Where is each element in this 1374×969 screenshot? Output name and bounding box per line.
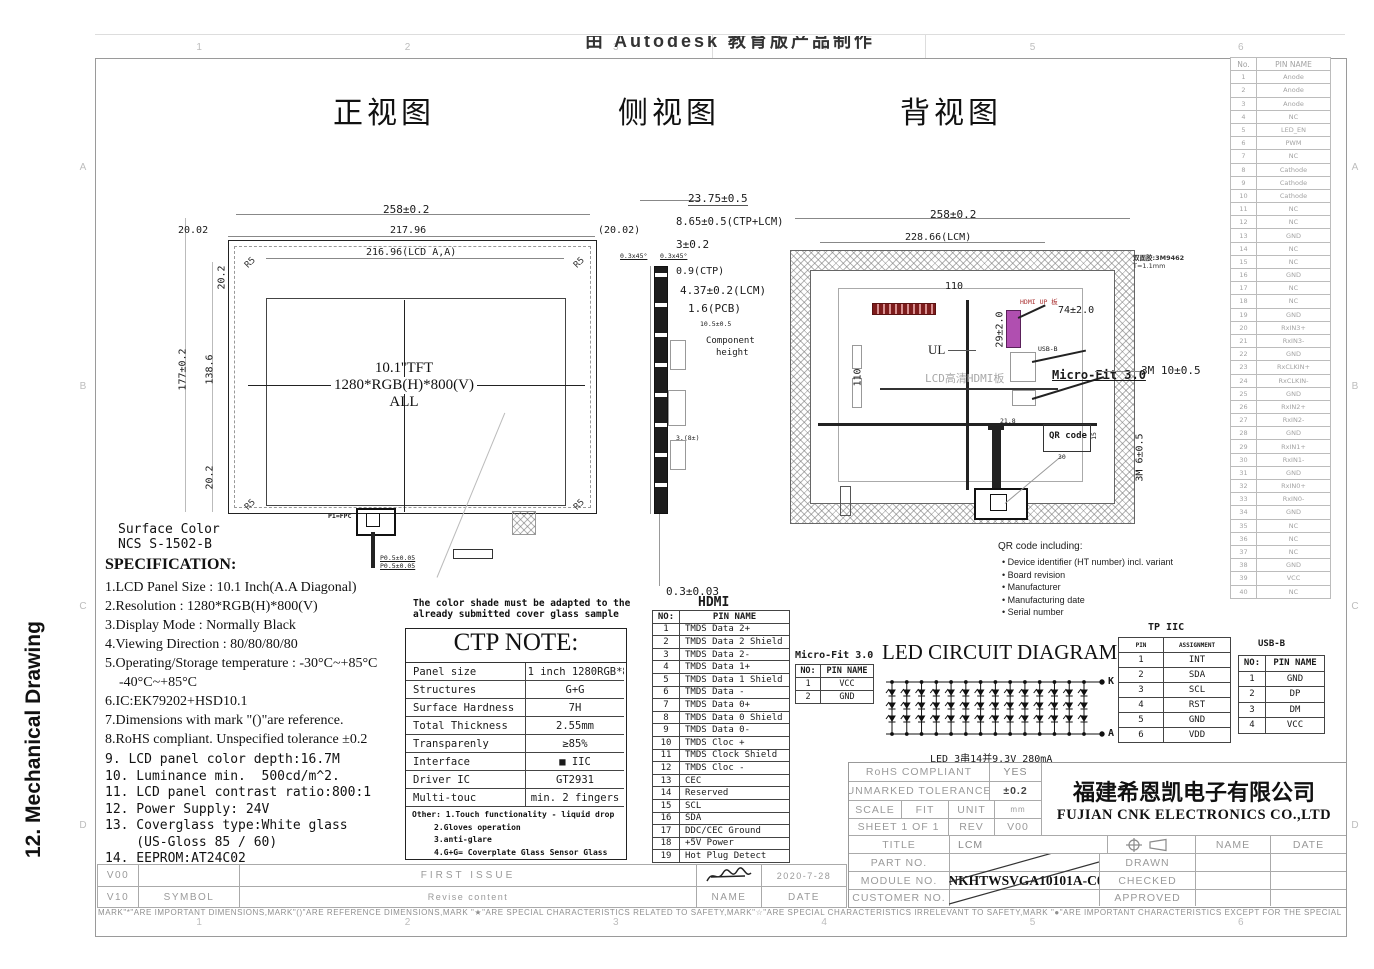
table-cell: A (1352, 162, 1359, 173)
table-row: Panel size10.1 inch 1280RGB*800 (406, 663, 624, 681)
table-row: Other: 1.Touch functionality - liquid dr… (412, 809, 626, 822)
antenna-part (840, 486, 851, 516)
table-row: Surface Hardness7H (406, 699, 624, 717)
table-cell: SCL (1164, 683, 1231, 698)
table-cell: D (1351, 820, 1358, 831)
fpc-connector-inner (366, 513, 380, 527)
table-cell: 10.1 inch 1280RGB*800 (526, 663, 624, 681)
table-cell: NC (1257, 282, 1331, 295)
led-circuit-diagram (884, 668, 1110, 748)
table-row: 11. LCD panel contrast ratio:800:1 (105, 785, 415, 802)
table-row: 25GND (1231, 388, 1331, 401)
table-cell: 32 (1231, 480, 1257, 493)
table-cell: 18 (653, 838, 680, 851)
title-block: RoHS COMPLIANT YES UNMARKED TOLERANCE ±0… (848, 762, 1347, 908)
side-component (668, 390, 686, 426)
table-cell: +5V Power (680, 838, 790, 851)
table-row: NO:PIN NAME (1239, 656, 1325, 672)
table-cell: 14 (653, 787, 680, 800)
table-row: 3.anti-glare (412, 834, 626, 847)
table-row: 12NC (1231, 216, 1331, 229)
table-cell: 3 (613, 915, 619, 929)
table-cell: 4.Viewing Direction : 80/80/80/80 (105, 635, 415, 654)
surface-color-note: Surface Color NCS S-1502-B (118, 522, 220, 552)
grid-cols-bottom: 123456 (95, 915, 1345, 929)
panel-resolution-text: 1280*RGB(H)*800(V) (331, 377, 477, 394)
unit-label: UNIT (949, 801, 995, 819)
table-cell: Device identifier (HT number) incl. vari… (1002, 556, 1232, 569)
qr-note-items: Device identifier (HT number) incl. vari… (1002, 556, 1232, 619)
ul-mark: UL (928, 342, 945, 358)
table-cell: NC (1257, 520, 1331, 533)
table-row: 8Cathode (1231, 164, 1331, 177)
revision-date-header: DATE (762, 887, 846, 907)
dim-label: 1.6(PCB) (688, 302, 741, 315)
table-cell: 14 (1231, 243, 1257, 256)
table-row: 17NC (1231, 282, 1331, 295)
table-cell: 39 (1231, 572, 1257, 585)
table-row: A (1348, 58, 1362, 277)
table-cell: 6 (1238, 915, 1244, 929)
table-row: 6VDD (1119, 728, 1231, 743)
table-cell: Structures (406, 681, 526, 699)
table-cell: 40 (1231, 586, 1257, 599)
table-cell: 5 (1231, 124, 1257, 137)
drawing-sheet: 12. Mechanical Drawing 123456 123456 ABC… (0, 0, 1374, 969)
table-cell: PIN (1119, 638, 1164, 653)
table-cell: 5 (653, 674, 680, 687)
name-column-label: NAME (1196, 836, 1271, 854)
table-row: -40°C~+85°C (105, 673, 415, 692)
table-row: Manufacturer (1002, 581, 1232, 594)
table-row: 2Anode (1231, 84, 1331, 97)
table-cell: RxIN0+ (1257, 480, 1331, 493)
table-cell: SDA (680, 813, 790, 826)
table-cell: 6 (1119, 728, 1164, 743)
checked-date (1271, 872, 1346, 890)
table-cell: RxIN1+ (1257, 440, 1331, 453)
led-diagram-title: LED CIRCUIT DIAGRAM: (882, 640, 1123, 665)
table-cell: 3 (1231, 98, 1257, 111)
table-cell: Anode (1257, 71, 1331, 84)
table-cell: GND (1164, 713, 1231, 728)
table-row: No.PIN NAME (1231, 58, 1331, 71)
table-row: 3SCL (1119, 683, 1231, 698)
table-cell: VCC (821, 678, 874, 691)
dim-label: 21.8 (1000, 417, 1016, 425)
dim-label: 10.5±0.5 (700, 320, 731, 328)
table-cell: PIN NAME (680, 611, 790, 624)
table-cell: NC (1257, 295, 1331, 308)
table-cell: 1 (1119, 653, 1164, 668)
table-row: 5GND (1119, 713, 1231, 728)
table-cell: GND (1257, 427, 1331, 440)
revision-version: V10 (98, 887, 139, 907)
table-cell: NC (1257, 256, 1331, 269)
table-cell: RxIN2- (1257, 414, 1331, 427)
ctp-note-table: Panel size10.1 inch 1280RGB*800Structure… (406, 663, 624, 807)
table-cell: C (1351, 601, 1358, 612)
table-row: 17DDC/CEC Ground (653, 825, 790, 838)
table-row: 3 (512, 915, 720, 929)
dim-label: 20.2 (217, 243, 228, 313)
table-row: 4TMDS Data 1+ (653, 661, 790, 674)
table-row: 18+5V Power (653, 838, 790, 851)
table-row: 38GND (1231, 559, 1331, 572)
table-cell: 20 (1231, 322, 1257, 335)
watermark-strip: 由 Autodesk 教育版产品制作 (500, 36, 960, 49)
table-row: 14NC (1231, 243, 1331, 256)
dim-label: 4.37±0.2(LCM) (680, 284, 766, 297)
dim-label: 3M 10±0.5 (1141, 364, 1201, 377)
dim-label: P0.5±0.05 (380, 562, 415, 570)
spec-list-serif: 1.LCD Panel Size : 10.1 Inch(A.A Diagona… (105, 578, 415, 749)
spec-list-mono: 9. LCD panel color depth:16.7M10. Lumina… (105, 752, 415, 868)
panel-all-text: ALL (264, 394, 544, 411)
table-row: Serial number (1002, 606, 1232, 619)
table-cell: 2.55mm (526, 717, 624, 735)
panel-size-text: 10.1''TFT (264, 360, 544, 377)
table-cell: SCL (680, 800, 790, 813)
table-cell: RxIN3- (1257, 335, 1331, 348)
table-cell: TMDS Cloc - (680, 762, 790, 775)
page-label: 12. Mechanical Drawing (22, 621, 46, 858)
rohs-value: YES (990, 763, 1042, 782)
table-row: Transparenly≥85% (406, 735, 624, 753)
table-cell: GND (1257, 559, 1331, 572)
dim-line (228, 236, 595, 237)
module-no-label: MODULE NO. (849, 872, 950, 890)
back-view-title: 背视图 (900, 88, 1002, 132)
table-cell: PIN NAME (821, 665, 874, 678)
table-row: 8.RoHS compliant. Unspecified tolerance … (105, 730, 415, 749)
table-cell: INT (1164, 653, 1231, 668)
rev-value: V00 (995, 819, 1042, 836)
table-row: 12. Power Supply: 24V (105, 802, 415, 819)
table-cell: 6 (1231, 137, 1257, 150)
table-row: 7NC (1231, 150, 1331, 163)
board-label: LCD高清HDMI板 (925, 370, 1004, 386)
table-cell: NC (1257, 546, 1331, 559)
table-cell: 5.Operating/Storage temperature : -30°C~… (105, 654, 415, 673)
usb-connector (1010, 352, 1036, 382)
table-row: 23RxCLKIN+ (1231, 361, 1331, 374)
table-cell: 1 (653, 624, 680, 637)
ctp-note-box: CTP NOTE: Panel size10.1 inch 1280RGB*80… (405, 628, 627, 860)
table-cell: DM (1266, 703, 1325, 719)
table-cell: 9 (1231, 177, 1257, 190)
color-shade-line1: The color shade must be adapted to the (413, 598, 630, 609)
table-row: NO:PIN NAME (796, 665, 874, 678)
table-row: 28GND (1231, 427, 1331, 440)
table-cell: 1 (796, 678, 821, 691)
company-name-cn: 福建希恩凯电子有限公司 (1073, 775, 1315, 807)
table-cell: NC (1257, 533, 1331, 546)
table-row: 2GND (796, 691, 874, 704)
scale-label: SCALE (849, 801, 902, 819)
ul-dash (948, 350, 976, 351)
table-row: 4.Viewing Direction : 80/80/80/80 (105, 635, 415, 654)
tp-iic-title: TP IIC (1148, 622, 1184, 633)
table-cell: 3 (1119, 683, 1164, 698)
table-cell: 2.Gloves operation (412, 822, 626, 835)
table-cell: 35 (1231, 520, 1257, 533)
table-cell: 3 (1239, 703, 1266, 719)
dim-line (1095, 371, 1140, 372)
revision-description: Revise content (240, 887, 697, 907)
table-cell: VDD (1164, 728, 1231, 743)
table-cell: NO: (796, 665, 821, 678)
table-cell: 10 (1231, 190, 1257, 203)
table-row: 21RxIN3- (1231, 335, 1331, 348)
table-cell: DDC/CEC Ground (680, 825, 790, 838)
unit-value: mm (995, 801, 1042, 819)
table-row: 4.G+G= Coverplate Glass Sensor Glass (412, 847, 626, 860)
table-row: 3Anode (1231, 98, 1331, 111)
table-cell: 21 (1231, 335, 1257, 348)
table-cell: 11. LCD panel contrast ratio:800:1 (105, 785, 415, 802)
table-cell: 12. Power Supply: 24V (105, 802, 415, 819)
signature-icon (705, 867, 753, 885)
panel-center-text: 10.1''TFT 1280*RGB(H)*800(V) ALL (264, 360, 544, 411)
hdmi-pin-table: NO:PIN NAME1TMDS Data 2+2TMDS Data 2 Shi… (652, 610, 790, 863)
table-cell: SDA (1164, 668, 1231, 683)
qr-code-label: QR code (1049, 431, 1087, 441)
table-cell: 2.Resolution : 1280*RGB(H)*800(V) (105, 597, 415, 616)
qr-note-title: QR code including: (998, 541, 1083, 552)
table-row: 15SCL (653, 800, 790, 813)
table-row: 34GND (1231, 506, 1331, 519)
dim-label: 3.(8±) (676, 434, 699, 442)
drawn-date (1271, 854, 1346, 872)
table-cell: 5 (1030, 915, 1036, 929)
table-row: Manufacturing date (1002, 594, 1232, 607)
table-row: 7TMDS Data 0+ (653, 699, 790, 712)
table-cell: 13 (1231, 229, 1257, 242)
table-row: 2SDA (1119, 668, 1231, 683)
title-value: LCM (950, 836, 1108, 854)
table-cell: Anode (1257, 84, 1331, 97)
dim-label: 3M 6±0.5 (1135, 423, 1146, 493)
table-cell: 3.anti-glare (412, 834, 626, 847)
table-row: (US-Gloss 85 / 60) (105, 835, 415, 852)
grid-rows-right: ABCD (1348, 58, 1362, 935)
table-cell: TMDS Data 0- (680, 724, 790, 737)
watermark-text: 由 Autodesk 教育版产品制作 (500, 36, 960, 49)
table-row: 2.Gloves operation (412, 822, 626, 835)
table-cell: NC (1257, 203, 1331, 216)
table-cell: 7 (653, 699, 680, 712)
usb-pin-table: NO:PIN NAME1GND2DP3DM4VCC (1238, 655, 1325, 734)
dim-label: 258±0.2 (930, 208, 976, 221)
table-cell: 17 (1231, 282, 1257, 295)
revision-table: V00 FIRST ISSUE 2020-7-28 V10 SYMBOL Rev… (97, 864, 847, 908)
ctp-note-title: CTP NOTE: (406, 629, 626, 663)
table-row: 26RxIN2+ (1231, 401, 1331, 414)
ext-line (650, 266, 651, 514)
revision-symbol (139, 865, 240, 886)
qr-note: QR code including: (998, 541, 1083, 554)
table-cell: Total Thickness (406, 717, 526, 735)
approved-name (1196, 890, 1271, 906)
table-cell: 37 (1231, 546, 1257, 559)
table-row: 5 (928, 915, 1136, 929)
table-cell: Interface (406, 753, 526, 771)
table-cell: 4 (1239, 718, 1266, 734)
table-cell: GND (1257, 506, 1331, 519)
dim-label: 138.6 (205, 335, 216, 405)
table-row: 1Anode (1231, 71, 1331, 84)
table-cell: TMDS Data 0+ (680, 699, 790, 712)
table-cell: 8.RoHS compliant. Unspecified tolerance … (105, 730, 415, 749)
table-row: 9. LCD panel color depth:16.7M (105, 752, 415, 769)
table-cell: ASSIGNMENT (1164, 638, 1231, 653)
table-row: 2 (303, 40, 511, 54)
table-cell: 1 (1239, 672, 1266, 688)
table-row: 1VCC (796, 678, 874, 691)
table-row: 4 (720, 915, 928, 929)
table-cell: Driver IC (406, 771, 526, 789)
table-cell: 22 (1231, 348, 1257, 361)
table-cell: G+G (526, 681, 624, 699)
dim-label: 20.2 (205, 443, 216, 513)
tolerance-label: UNMARKED TOLERANCE (849, 782, 990, 801)
dim-label: P0.5±0.05 (380, 554, 415, 562)
table-cell: 16 (653, 813, 680, 826)
table-row: D (1348, 716, 1362, 935)
table-cell: 1 (196, 40, 202, 54)
table-cell: Anode (1257, 98, 1331, 111)
table-row: 5TMDS Data 1 Shield (653, 674, 790, 687)
table-cell: 13. Coverglass type:White glass (105, 818, 415, 835)
tape-note-line2: T=1.1mm (1133, 262, 1184, 270)
color-shade-note: The color shade must be adapted to the a… (413, 598, 630, 620)
dim-label: (20.02) (598, 225, 640, 236)
part-no-label: PART NO. (849, 854, 950, 872)
table-cell: Cathode (1257, 164, 1331, 177)
hatch-detail (512, 511, 536, 535)
table-cell: GND (1257, 309, 1331, 322)
drawn-name (1196, 854, 1271, 872)
table-cell: 2 (1231, 84, 1257, 97)
table-row: 1GND (1239, 672, 1325, 688)
drawn-label: DRAWN (1100, 854, 1196, 872)
table-row: 6PWM (1231, 137, 1331, 150)
table-cell: VCC (1257, 572, 1331, 585)
date-column-label: DATE (1271, 836, 1346, 854)
table-row: 20RxIN3+ (1231, 322, 1331, 335)
table-cell: RST (1164, 698, 1231, 713)
ctp-note-other: Other: 1.Touch functionality - liquid dr… (406, 807, 626, 859)
table-cell: 19 (1231, 309, 1257, 322)
table-row: 16SDA (653, 813, 790, 826)
table-row: NO:PIN NAME (653, 611, 790, 624)
table-row: 6TMDS Data - (653, 687, 790, 700)
table-cell: 15 (653, 800, 680, 813)
table-cell: NO: (1239, 656, 1266, 672)
table-cell: 26 (1231, 401, 1257, 414)
first-angle-projection-icon (1126, 838, 1170, 852)
table-cell: 29 (1231, 440, 1257, 453)
table-row: 5LED_EN (1231, 124, 1331, 137)
dim-label: 110 (853, 343, 864, 413)
projection-cell (1100, 836, 1196, 854)
table-row: 10TMDS Cloc + (653, 737, 790, 750)
table-cell: LED_EN (1257, 124, 1331, 137)
table-cell: C (79, 601, 86, 612)
table-row: 6 (1137, 40, 1345, 54)
connector-label: USB-B (1038, 345, 1058, 353)
revision-symbol: SYMBOL (139, 887, 240, 907)
table-row: 5.Operating/Storage temperature : -30°C~… (105, 654, 415, 673)
table-cell: 3 (653, 649, 680, 662)
table-cell: 4 (1119, 698, 1164, 713)
table-cell: B (1352, 381, 1359, 392)
table-cell: 7.Dimensions with mark "()"are reference… (105, 711, 415, 730)
table-row: 1.LCD Panel Size : 10.1 Inch(A.A Diagona… (105, 578, 415, 597)
table-cell: 10 (653, 737, 680, 750)
fpc-tail (371, 532, 375, 568)
ext-line (659, 514, 660, 586)
table-row: C (1348, 497, 1362, 716)
table-cell: 30 (1231, 454, 1257, 467)
dim-label: 228.66(LCM) (905, 232, 971, 243)
table-cell: 4 (1231, 111, 1257, 124)
table-cell: TMDS Data 2 Shield (680, 636, 790, 649)
side-component (670, 340, 686, 370)
table-cell: No. (1231, 58, 1257, 71)
table-cell: 6 (653, 687, 680, 700)
side-view-title: 侧视图 (618, 88, 720, 132)
tolerance-value: ±0.2 (990, 782, 1042, 801)
table-row: 3.Display Mode : Normally Black (105, 616, 415, 635)
spec-title: SPECIFICATION: (105, 556, 236, 574)
company-box: 福建希恩凯电子有限公司 FUJIAN CNK ELECTRONICS CO.,L… (1042, 763, 1346, 836)
table-cell: RxIN3+ (1257, 322, 1331, 335)
table-cell: TMDS Data - (680, 687, 790, 700)
table-cell: -40°C~+85°C (105, 673, 415, 692)
module-no-slashes (949, 854, 1099, 907)
table-row: D (76, 716, 90, 935)
table-row: 2TMDS Data 2 Shield (653, 636, 790, 649)
table-row: StructuresG+G (406, 681, 624, 699)
centerline-v (966, 300, 969, 490)
table-row: 13GND (1231, 229, 1331, 242)
dim-label: 177±0.2 (178, 335, 189, 405)
table-cell: B (80, 381, 87, 392)
table-cell: Panel size (406, 663, 526, 681)
table-row: 3TMDS Data 2- (653, 649, 790, 662)
board-connector (453, 549, 493, 559)
dim-label: height (716, 348, 749, 358)
table-cell: 1 (1231, 71, 1257, 84)
table-cell: Transparenly (406, 735, 526, 753)
table-cell: PWM (1257, 137, 1331, 150)
table-cell: (US-Gloss 85 / 60) (105, 835, 415, 852)
customer-no-label: CUSTOMER NO. (849, 890, 950, 906)
table-row: Board revision (1002, 569, 1232, 582)
title-label: TITLE (849, 836, 950, 854)
revision-version: V00 (98, 865, 139, 886)
table-row: 32RxIN0+ (1231, 480, 1331, 493)
table-cell: 8 (1231, 164, 1257, 177)
table-cell: TMDS Data 2+ (680, 624, 790, 637)
checked-label: CHECKED (1100, 872, 1196, 890)
scale-value: FIT (902, 801, 949, 819)
revision-name-header: NAME (697, 887, 762, 907)
table-cell: 16 (1231, 269, 1257, 282)
table-cell: DP (1266, 687, 1325, 703)
